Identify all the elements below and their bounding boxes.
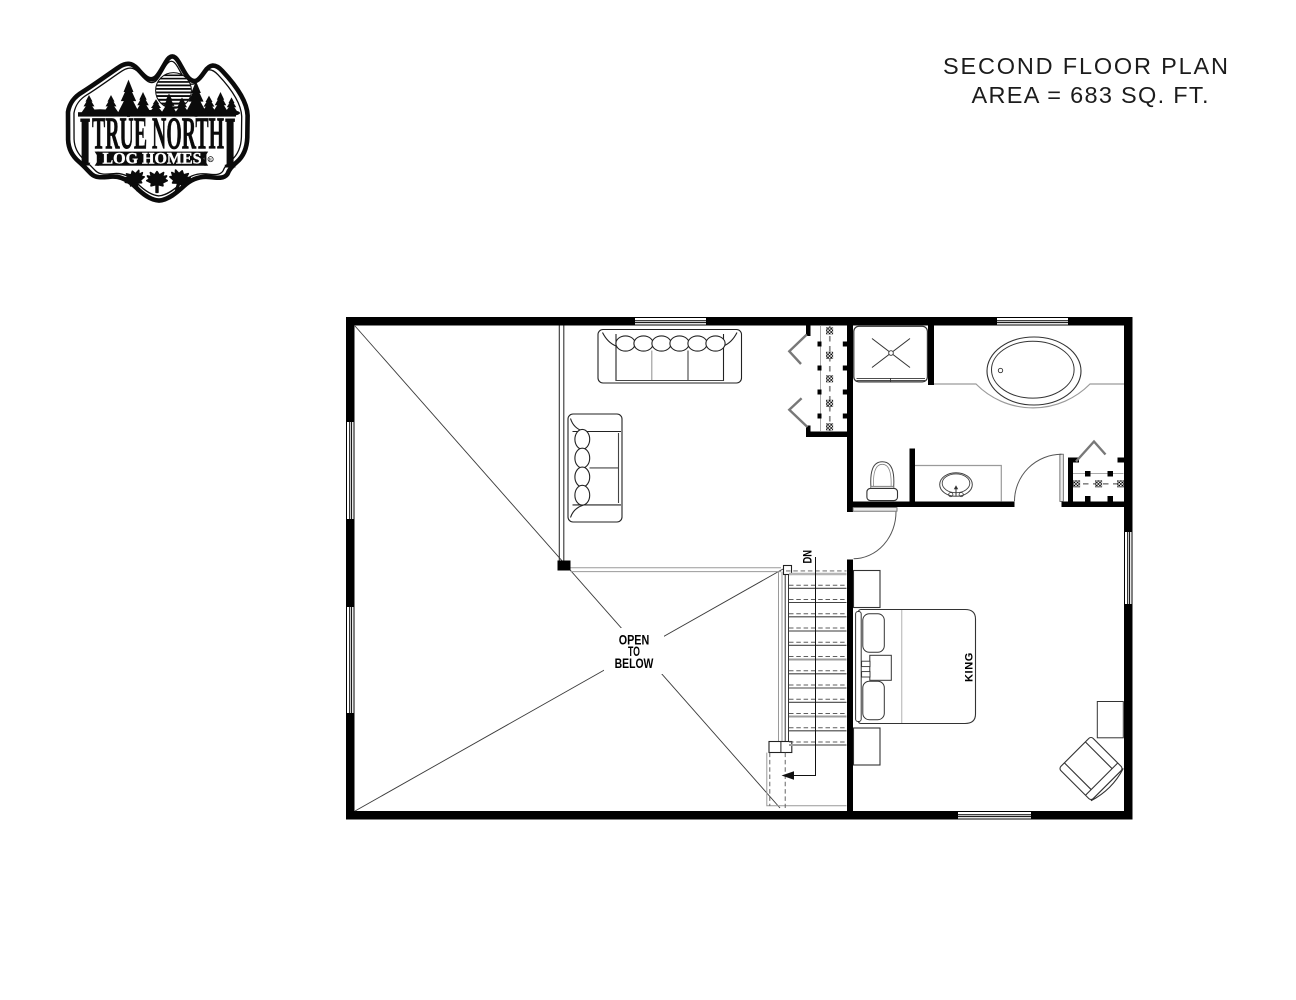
svg-text:AREA = 683 SQ. FT.: AREA = 683 SQ. FT. [972,82,1209,108]
svg-text:SECOND FLOOR PLAN: SECOND FLOOR PLAN [943,53,1228,79]
svg-text:KING: KING [964,652,976,682]
svg-text:LOG HOMES: LOG HOMES [103,151,202,168]
svg-text:BELOW: BELOW [615,656,654,671]
svg-text:DN: DN [803,550,815,564]
